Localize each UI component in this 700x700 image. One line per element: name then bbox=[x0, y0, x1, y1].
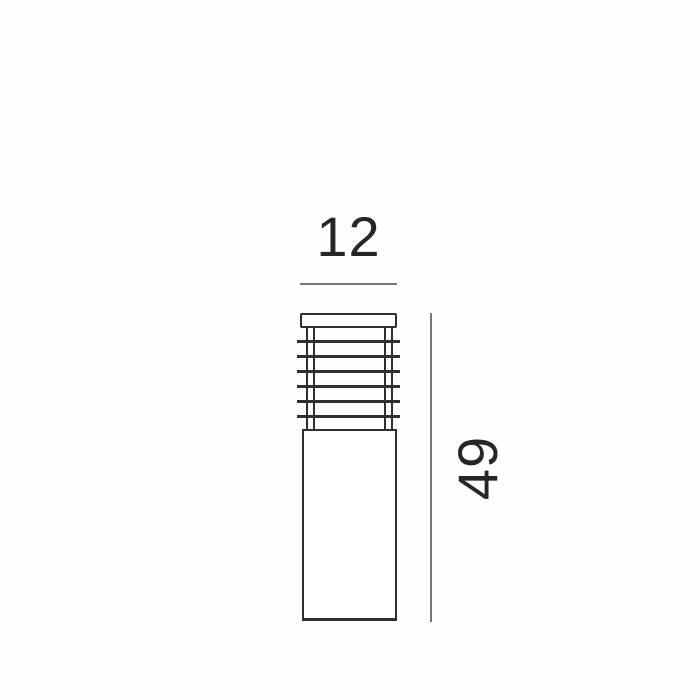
height-dimension-line bbox=[430, 313, 432, 622]
louver-slat bbox=[297, 400, 400, 403]
lamp-louver-section bbox=[297, 328, 400, 429]
louver-slat bbox=[297, 370, 400, 373]
width-dimension-line bbox=[300, 283, 397, 285]
louver-post-line bbox=[306, 328, 308, 429]
lamp-body bbox=[302, 429, 397, 621]
bollard-dimension-drawing: 12 49 bbox=[0, 0, 700, 700]
louver-post-line bbox=[313, 328, 315, 429]
height-dimension-label: 49 bbox=[450, 436, 506, 500]
louver-post-line bbox=[391, 328, 393, 429]
louver-post-line bbox=[384, 328, 386, 429]
louver-slat bbox=[297, 415, 400, 418]
lamp-cap bbox=[300, 313, 397, 328]
louver-slat bbox=[297, 355, 400, 358]
louver-slat bbox=[297, 340, 400, 343]
width-dimension-label: 12 bbox=[300, 209, 397, 265]
louver-slat bbox=[297, 385, 400, 388]
